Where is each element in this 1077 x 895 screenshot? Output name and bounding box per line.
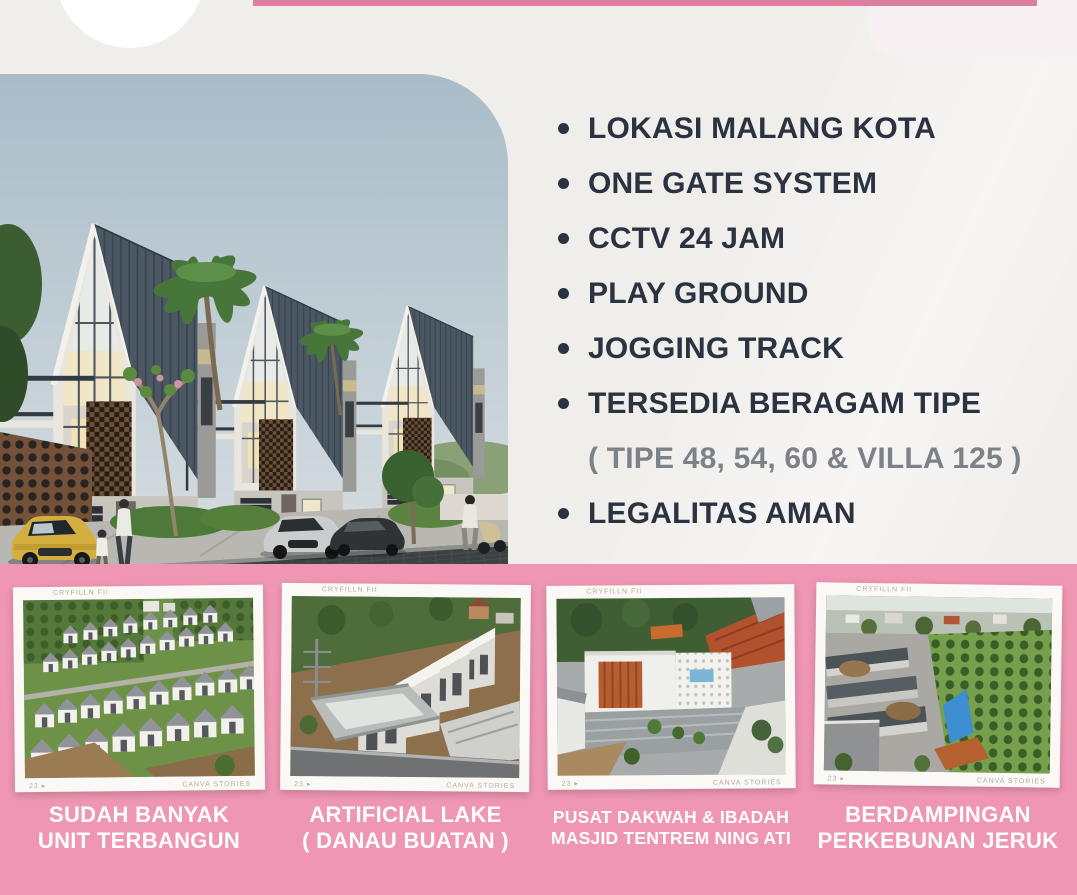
feature-label: PLAY GROUND (588, 277, 809, 310)
feature-label: JOGGING TRACK (588, 332, 844, 365)
photo-card-mosque: CRYFILLN FII (546, 584, 795, 790)
bullet-icon (558, 398, 569, 409)
feature-item: CCTV 24 JAM (558, 222, 1073, 255)
photo-card-built-units: CRYFILLN FII (13, 585, 265, 793)
bullet-icon (558, 288, 569, 299)
caption-line: MASJID TENTREM NING ATI (536, 828, 806, 849)
caption-line: UNIT TERBANGUN (6, 828, 272, 854)
bullet-icon (558, 123, 569, 134)
feature-list: LOKASI MALANG KOTA ONE GATE SYSTEM CCTV … (558, 112, 1073, 552)
watermark-brand: CANVA STORIES (446, 782, 515, 790)
top-pink-strip (253, 0, 1037, 6)
gallery-panel: CRYFILLN FII (0, 564, 1077, 895)
caption-line: ( DANAU BUATAN ) (273, 828, 538, 854)
caption-line: PUSAT DAKWAH & IBADAH (536, 807, 806, 828)
watermark-page: 23 ▸ (29, 782, 46, 790)
feature-item: JOGGING TRACK (558, 332, 1073, 365)
photo-card-orchard: CRYFILLN FII (814, 582, 1063, 787)
feature-label: CCTV 24 JAM (588, 222, 785, 255)
photo-card-artificial-lake: CRYFILLN FII (280, 583, 531, 792)
caption-line: PERKEBUNAN JERUK (806, 828, 1070, 854)
feature-label: LOKASI MALANG KOTA (588, 112, 936, 145)
caption-built-units: SUDAH BANYAK UNIT TERBANGUN (6, 802, 272, 854)
bullet-icon (558, 343, 569, 354)
watermark-brand: CANVA STORIES (977, 778, 1046, 786)
feature-item: ONE GATE SYSTEM (558, 167, 1073, 200)
top-right-corner-card (868, 0, 1077, 57)
watermark-text: CRYFILLN FII (53, 589, 109, 597)
watermark-page: 23 ▸ (828, 774, 845, 782)
feature-item: LEGALITAS AMAN (558, 497, 1073, 530)
caption-line: BERDAMPINGAN (806, 802, 1070, 828)
watermark-brand: CANVA STORIES (713, 779, 782, 786)
caption-mosque: PUSAT DAKWAH & IBADAH MASJID TENTREM NIN… (536, 807, 806, 849)
photo-orchard-construction (824, 595, 1052, 773)
feature-label: TERSEDIA BERAGAM TIPE (588, 387, 981, 420)
photo-lake-construction (290, 596, 521, 778)
caption-line: ARTIFICIAL LAKE (273, 802, 538, 828)
feature-sublabel: ( TIPE 48, 54, 60 & VILLA 125 ) (588, 442, 1022, 475)
bullet-icon (558, 508, 569, 519)
feature-item: LOKASI MALANG KOTA (558, 112, 1073, 145)
watermark-page: 23 ▸ (562, 780, 579, 788)
bullet-icon (558, 178, 569, 189)
watermark-text: CRYFILLN FII (586, 588, 642, 595)
watermark-text: CRYFILLN FII (856, 586, 912, 594)
hero-illustration (0, 74, 508, 564)
feature-item-sub: ( TIPE 48, 54, 60 & VILLA 125 ) (558, 442, 1073, 475)
feature-label: LEGALITAS AMAN (588, 497, 856, 530)
watermark-page: 23 ▸ (294, 780, 311, 788)
feature-item: PLAY GROUND (558, 277, 1073, 310)
photo-aerial-built-units (23, 598, 255, 778)
caption-artificial-lake: ARTIFICIAL LAKE ( DANAU BUATAN ) (273, 802, 538, 854)
bullet-icon (558, 233, 569, 244)
caption-line: SUDAH BANYAK (6, 802, 272, 828)
watermark-brand: CANVA STORIES (182, 781, 251, 789)
feature-label: ONE GATE SYSTEM (588, 167, 877, 200)
hero-house-render-photo (0, 74, 508, 564)
caption-orchard: BERDAMPINGAN PERKEBUNAN JERUK (806, 802, 1070, 854)
photo-mosque-courtyard (556, 597, 785, 776)
feature-item: TERSEDIA BERAGAM TIPE (558, 387, 1073, 420)
watermark-text: CRYFILLN FII (322, 586, 378, 593)
flyer-page: LOKASI MALANG KOTA ONE GATE SYSTEM CCTV … (0, 0, 1077, 895)
